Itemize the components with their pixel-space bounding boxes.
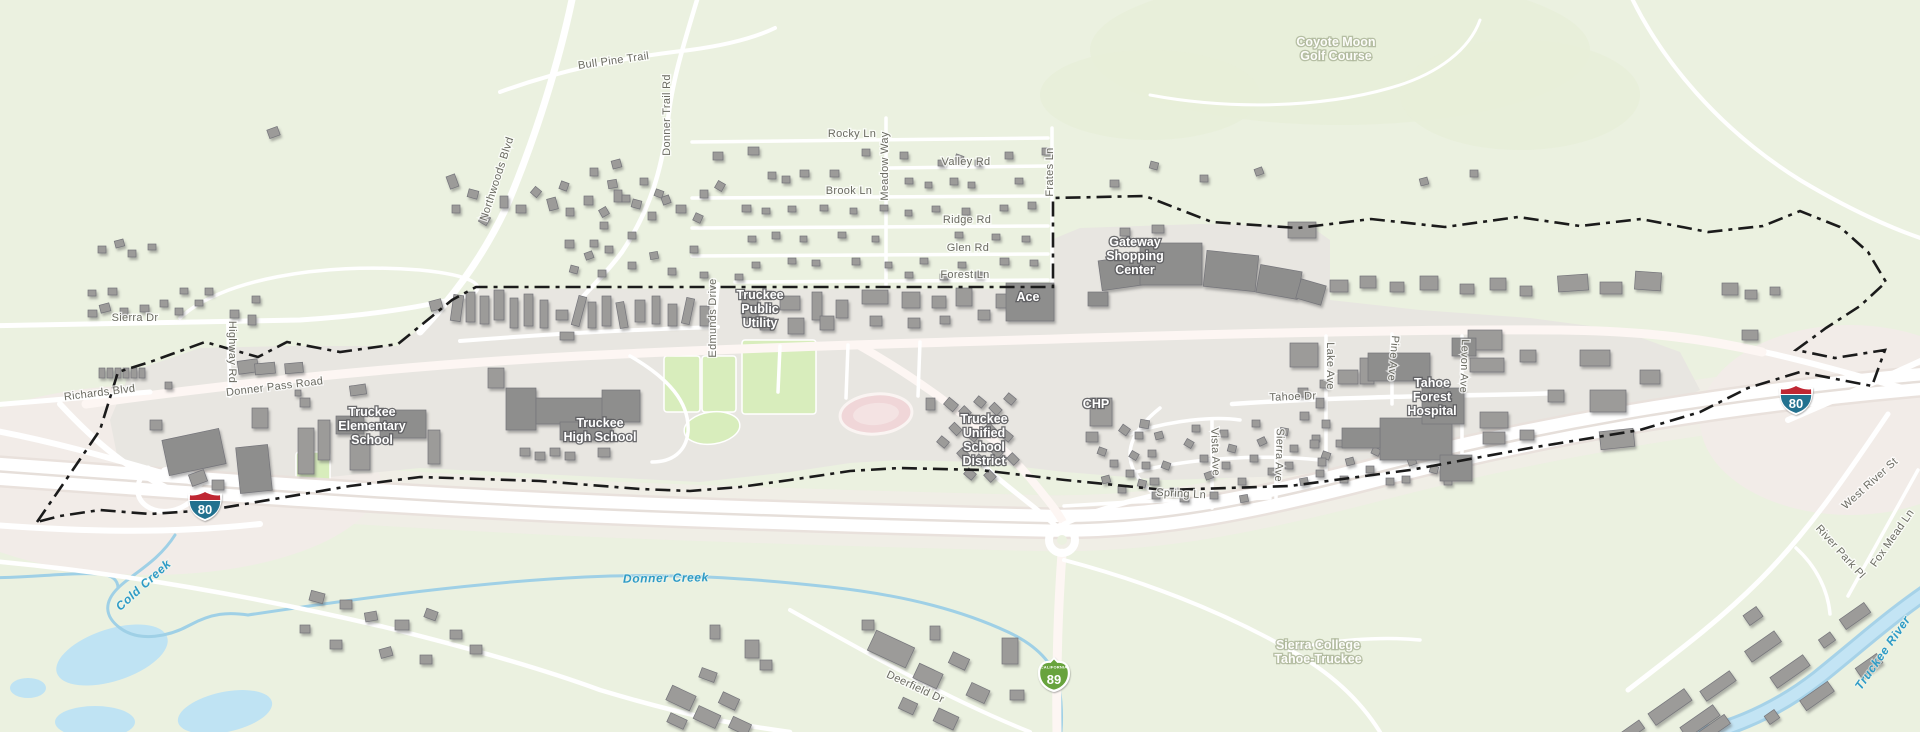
label-highway-rd: Highway Rd (226, 321, 238, 383)
label-levon-ave: Levon Ave (1457, 339, 1471, 393)
building (128, 250, 136, 257)
building (450, 630, 462, 639)
building (1010, 690, 1024, 700)
building (205, 288, 213, 295)
building (713, 152, 723, 160)
building (862, 149, 870, 156)
label-donner-creek: Donner Creek (623, 570, 710, 586)
building (1345, 457, 1355, 466)
building (649, 251, 658, 259)
label-meadow-way: Meadow Way (879, 131, 891, 200)
building (236, 444, 273, 493)
building (550, 448, 560, 456)
building (1150, 478, 1159, 485)
building (920, 258, 928, 264)
building (560, 332, 574, 340)
building (1745, 290, 1757, 299)
building (330, 640, 342, 649)
building (652, 296, 660, 324)
building (1088, 292, 1108, 306)
building (925, 182, 932, 188)
building (165, 382, 172, 389)
building (614, 190, 622, 202)
building (1580, 350, 1610, 366)
building (195, 300, 203, 306)
building (99, 368, 105, 378)
building (1227, 444, 1237, 453)
building (540, 300, 548, 328)
building (1192, 425, 1200, 432)
building (940, 316, 950, 324)
building (500, 196, 508, 208)
label-vista-ave: Vista Ave (1208, 428, 1222, 477)
building (1322, 420, 1330, 428)
building (700, 190, 708, 198)
road-glen-rd (692, 254, 1048, 256)
road-forest-ln (735, 280, 1048, 282)
label-lake-ave: Lake Ave (1324, 342, 1336, 389)
building (1110, 460, 1118, 467)
building (598, 448, 610, 457)
building (510, 298, 518, 328)
building (800, 170, 809, 177)
building (762, 208, 770, 214)
building (768, 172, 776, 179)
building (628, 262, 636, 269)
building (1015, 178, 1023, 184)
building (494, 290, 504, 320)
label-edmunds-drive: Edmunds Drive (707, 278, 719, 357)
building (1086, 432, 1098, 442)
building (1742, 330, 1758, 340)
building (1222, 462, 1230, 469)
building (788, 258, 796, 264)
building (1239, 494, 1248, 502)
building (1640, 370, 1660, 384)
building (395, 620, 409, 630)
building (1110, 180, 1119, 187)
building (905, 272, 913, 278)
building (148, 244, 156, 250)
building (905, 178, 913, 184)
building (635, 300, 645, 322)
building (1288, 222, 1316, 238)
label-glen-rd: Glen Rd (947, 242, 989, 254)
svg-text:80: 80 (1789, 396, 1803, 411)
building (852, 258, 860, 265)
building (140, 305, 149, 312)
building (175, 308, 183, 315)
building (1402, 476, 1410, 483)
building (958, 262, 966, 268)
building (1419, 177, 1429, 186)
building (318, 420, 330, 460)
building (139, 368, 145, 378)
label-sierra-dr: Sierra Dr (112, 312, 159, 324)
building (180, 288, 188, 294)
building (516, 205, 526, 213)
map-canvas[interactable]: 8080CALIFORNIA89 Bull Pine TrailDonner T… (0, 0, 1920, 732)
sports-field (702, 356, 736, 412)
building (676, 205, 686, 213)
building (956, 288, 972, 306)
building (930, 626, 940, 640)
building (880, 205, 888, 211)
label-sierra-ave: Sierra Ave (1272, 428, 1286, 482)
building (285, 362, 304, 374)
building (1470, 358, 1504, 372)
building (1126, 470, 1134, 477)
building (298, 428, 314, 474)
label-truckee-unified-school-district: TruckeeUnifiedSchoolDistrict (960, 412, 1007, 468)
building (850, 208, 857, 214)
building (470, 645, 482, 654)
building (535, 452, 545, 460)
building (836, 300, 848, 318)
building (1460, 284, 1474, 294)
building (1285, 462, 1293, 469)
road-ridge-rd (692, 226, 1048, 228)
building (1770, 287, 1780, 295)
building (1290, 343, 1318, 367)
building (812, 260, 820, 266)
building (700, 272, 708, 278)
label-tahoe-dr: Tahoe Dr (1269, 390, 1316, 404)
building (300, 625, 310, 633)
building (752, 262, 760, 268)
label-ridge-rd: Ridge Rd (943, 214, 991, 226)
building (605, 246, 613, 253)
building (872, 236, 879, 242)
building (1470, 170, 1478, 177)
building (565, 452, 575, 460)
building (480, 296, 489, 324)
building (248, 315, 256, 325)
building (885, 262, 892, 268)
building (788, 318, 804, 334)
building (838, 232, 846, 238)
label-frates-ln: Frates Ln (1044, 147, 1056, 196)
building (820, 205, 828, 211)
building (1600, 282, 1622, 294)
building (742, 205, 751, 212)
building (584, 196, 593, 205)
building (1290, 445, 1298, 452)
building (565, 240, 574, 248)
building (1520, 350, 1536, 362)
building (1520, 430, 1534, 440)
building (108, 288, 117, 295)
roundabout-island (1057, 535, 1067, 545)
building (1366, 466, 1374, 473)
label-ace: Ace (1017, 290, 1040, 304)
building (1483, 432, 1505, 444)
building (1480, 412, 1508, 428)
building (1590, 390, 1626, 412)
building (1142, 462, 1150, 469)
building (150, 420, 162, 430)
building (1252, 420, 1260, 427)
building (602, 296, 611, 326)
building (1330, 280, 1348, 292)
golf-course-area (1400, 40, 1640, 150)
building (1030, 260, 1038, 266)
label-chp: CHP (1083, 397, 1109, 411)
building (1338, 370, 1358, 384)
building (772, 232, 780, 239)
road-town-v2 (918, 342, 920, 396)
building (1210, 492, 1218, 499)
label-donner-trail-rd: Donner Trail Rd (661, 74, 673, 156)
road-town-v1 (846, 345, 848, 398)
building (295, 390, 301, 396)
building (420, 655, 432, 664)
building (668, 268, 676, 275)
building (690, 246, 698, 253)
label-truckee-public-utility: TruckeePublicUtility (736, 288, 783, 330)
building (1250, 455, 1258, 462)
building (566, 208, 574, 216)
building (932, 296, 946, 308)
building (830, 170, 839, 177)
building (1310, 440, 1319, 448)
building (622, 195, 630, 202)
building (598, 270, 606, 277)
building (252, 408, 268, 428)
building (212, 480, 224, 490)
building (900, 152, 908, 159)
building (340, 600, 352, 609)
building (1316, 398, 1324, 408)
building (1316, 470, 1324, 477)
building (107, 368, 113, 378)
building (590, 168, 598, 176)
building (1149, 161, 1159, 170)
road-town-v3 (778, 346, 780, 392)
building (1000, 205, 1008, 211)
building (668, 304, 677, 326)
pond (10, 678, 46, 698)
label-coyote-moon-golf-course: Coyote MoonGolf Course (1296, 35, 1375, 63)
label-sierra-college-tahoe-truckee: Sierra CollegeTahoe-Truckee (1274, 638, 1361, 666)
building (1360, 276, 1376, 288)
building (735, 274, 743, 280)
building (1154, 431, 1164, 440)
building (862, 290, 888, 304)
building (955, 232, 963, 238)
building (1520, 286, 1532, 296)
label-valley-rd: Valley Rd (942, 156, 991, 168)
building (870, 316, 882, 326)
building (300, 398, 310, 407)
building (506, 388, 536, 430)
building (349, 384, 366, 396)
svg-text:80: 80 (198, 502, 212, 517)
building (788, 206, 796, 212)
building (800, 236, 807, 242)
building (640, 178, 648, 185)
building (252, 296, 260, 303)
building (1490, 278, 1506, 290)
building (488, 368, 504, 388)
building (908, 318, 920, 328)
building (520, 448, 530, 456)
building (978, 310, 990, 320)
label-forest-ln: Forest Ln (940, 269, 989, 281)
svg-text:CALIFORNIA: CALIFORNIA (1041, 665, 1068, 670)
building (1000, 258, 1009, 265)
building (760, 660, 772, 670)
building (607, 179, 617, 188)
road-hwy89-south (1057, 553, 1062, 732)
label-brook-ln: Brook Ln (826, 185, 872, 197)
svg-text:89: 89 (1047, 672, 1061, 687)
building (1002, 638, 1018, 664)
building (98, 246, 106, 253)
label-tahoe-forest-hospital: TahoeForestHospital (1407, 376, 1456, 418)
building (590, 240, 598, 247)
building (748, 147, 759, 155)
building (1420, 276, 1438, 290)
building (1390, 282, 1404, 292)
building (255, 362, 276, 375)
building (588, 302, 596, 328)
building (160, 300, 168, 307)
building (902, 292, 920, 308)
building (782, 176, 790, 183)
building (88, 310, 97, 317)
building (1722, 283, 1738, 295)
building (932, 206, 940, 212)
building (820, 316, 834, 330)
building (648, 212, 656, 220)
building (1386, 478, 1394, 485)
building (748, 236, 756, 242)
building (524, 294, 533, 326)
building (926, 398, 935, 410)
truckee-map[interactable]: 8080CALIFORNIA89 Bull Pine TrailDonner T… (0, 0, 1920, 732)
building (1300, 412, 1309, 420)
building (428, 430, 440, 464)
building (628, 232, 636, 239)
building (710, 625, 720, 639)
building (466, 292, 475, 322)
building (862, 620, 874, 630)
building (452, 205, 460, 213)
building (88, 290, 96, 296)
building (556, 310, 568, 320)
label-rocky-ln: Rocky Ln (828, 128, 876, 140)
building (1022, 236, 1030, 242)
building (745, 640, 759, 658)
building (1139, 419, 1149, 428)
building (1135, 432, 1143, 439)
building (364, 611, 377, 622)
building (1238, 478, 1246, 485)
building (1548, 390, 1564, 402)
building (992, 234, 1000, 240)
building (1599, 428, 1635, 449)
building (1634, 271, 1661, 291)
building (968, 182, 975, 188)
building (131, 368, 137, 378)
building (1557, 274, 1588, 292)
building (600, 222, 608, 229)
building (1005, 152, 1013, 159)
building (1152, 225, 1164, 233)
building (1318, 458, 1326, 466)
building (1101, 475, 1111, 484)
building (1203, 250, 1258, 291)
building (905, 210, 912, 216)
building (1148, 450, 1156, 457)
building (1028, 202, 1036, 209)
building (230, 310, 239, 318)
building (1200, 175, 1208, 182)
building (1200, 455, 1208, 462)
building (950, 178, 958, 185)
building (1342, 428, 1380, 448)
